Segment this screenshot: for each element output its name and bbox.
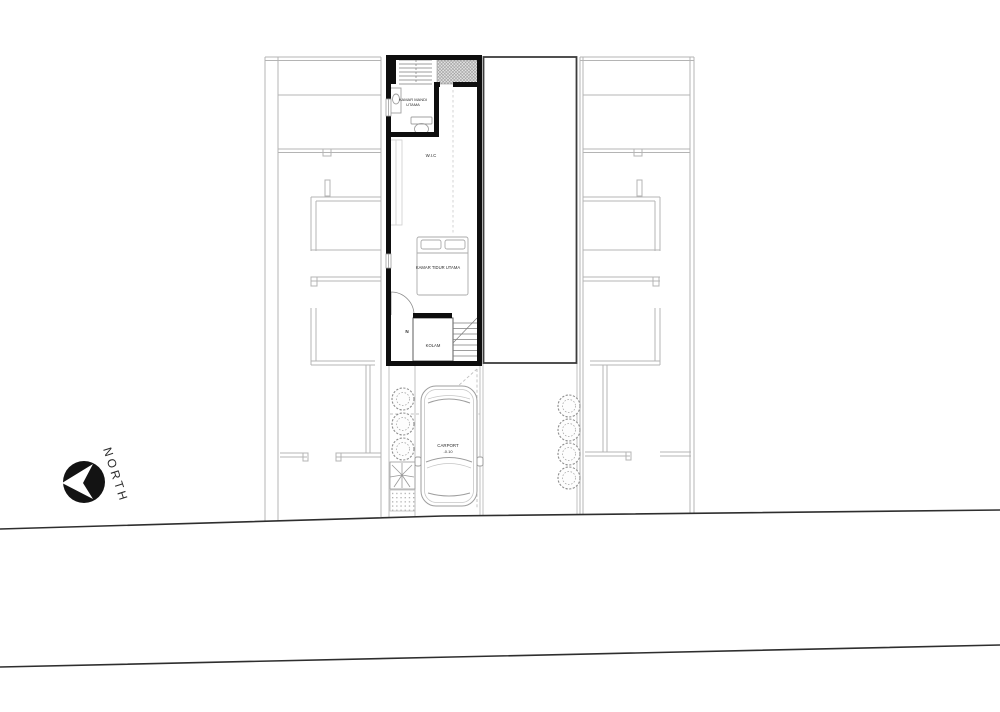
bathroom-fixtures	[390, 88, 432, 135]
road-lines	[0, 510, 1000, 667]
master-bedroom-label: KAMAR TIDUR UTAMA	[416, 265, 460, 270]
walk-in-closet-label: W.I.C	[426, 153, 437, 158]
pond-outline	[413, 318, 453, 361]
right-neighbor-lot	[580, 57, 694, 515]
adjacent-roof-block	[484, 57, 577, 363]
pond-label: KOLAM	[426, 343, 441, 348]
shrub-row-left	[392, 388, 414, 460]
lower-stair	[453, 318, 477, 356]
north-compass: NORTH	[62, 446, 131, 505]
site-plan-drawing: KAMAR MANDI UTAMA W.I.C KAMAR TIDUR UTAM…	[0, 0, 1000, 712]
hatched-canopy	[437, 60, 478, 84]
paving-strip	[390, 490, 415, 511]
road-edge-far	[0, 645, 1000, 667]
north-label: NORTH	[100, 446, 131, 505]
carport-yard	[389, 363, 580, 518]
door-swing	[391, 292, 414, 315]
upper-stair	[399, 60, 432, 84]
carport-level: -0.10	[443, 449, 453, 454]
carport-label: CARPORT	[437, 443, 459, 448]
palm-planter	[390, 462, 415, 489]
master-bathroom-label-line2: UTAMA	[406, 102, 420, 107]
architectural-site-plan: KAMAR MANDI UTAMA W.I.C KAMAR TIDUR UTAM…	[0, 0, 1000, 712]
toilet-tank-icon	[411, 117, 432, 124]
stair-marker: N	[405, 329, 409, 334]
carport-fence-lines	[389, 363, 577, 518]
wardrobe	[390, 140, 402, 225]
road-edge-near	[0, 510, 1000, 529]
left-neighbor-lot	[265, 57, 381, 521]
